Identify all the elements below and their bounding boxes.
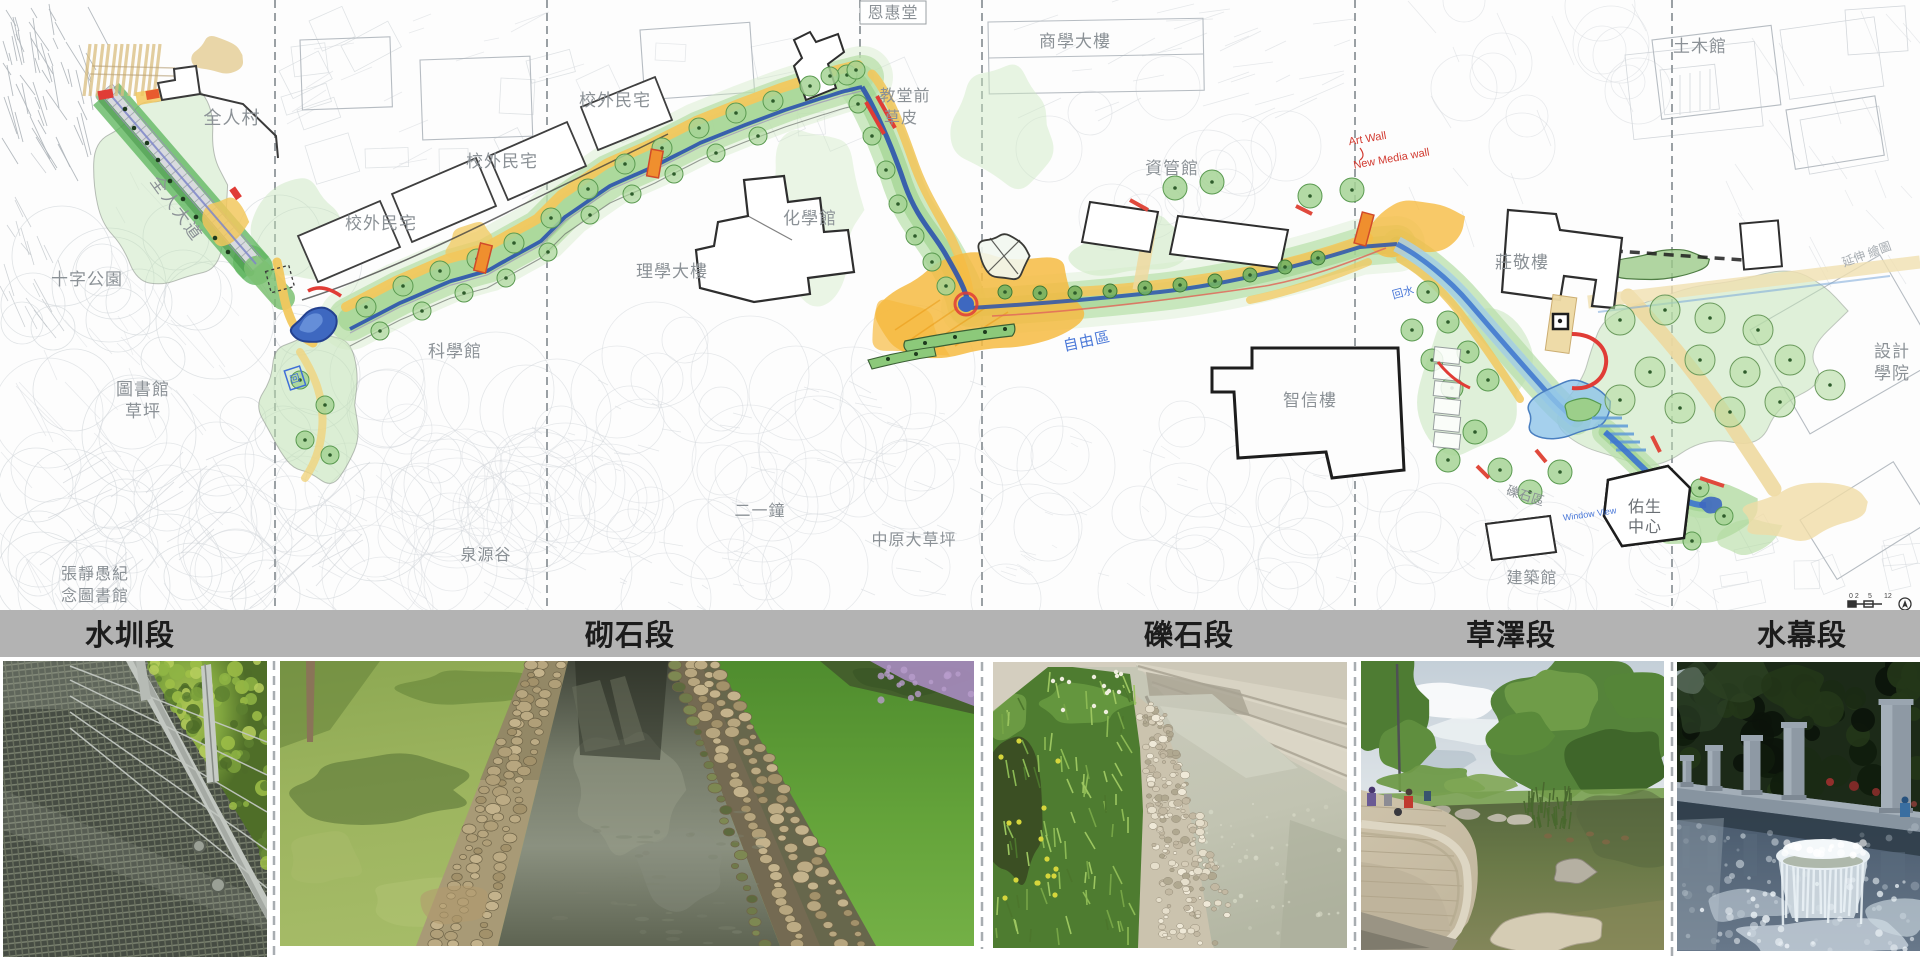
svg-text:念圖書館: 念圖書館 [61,586,129,605]
svg-text:圖書館: 圖書館 [116,380,170,399]
svg-text:全人村: 全人村 [204,108,261,128]
svg-text:草澤段: 草澤段 [1466,618,1556,652]
svg-text:化學館: 化學館 [783,209,837,228]
svg-text:校外民宅: 校外民宅 [466,152,538,171]
svg-text:科學館: 科學館 [428,342,482,361]
svg-text:土木館: 土木館 [1673,37,1727,56]
svg-text:智信樓: 智信樓 [1283,391,1337,410]
svg-text:設計: 設計 [1874,342,1910,361]
svg-text:資管館: 資管館 [1145,159,1199,178]
svg-text:草坪: 草坪 [125,402,161,421]
svg-text:中心: 中心 [1628,518,1662,536]
svg-text:十字公園: 十字公園 [51,270,123,289]
svg-text:商學大樓: 商學大樓 [1039,32,1111,51]
svg-text:12: 12 [1884,593,1892,600]
svg-text:礫石段: 礫石段 [1144,618,1234,652]
svg-text:草皮: 草皮 [884,109,918,127]
svg-text:砌石段: 砌石段 [585,618,675,652]
svg-text:0 2: 0 2 [1849,593,1859,600]
svg-text:校外民宅: 校外民宅 [345,214,417,233]
svg-text:恩惠堂: 恩惠堂 [867,4,918,22]
svg-text:校外民宅: 校外民宅 [579,91,651,110]
svg-text:建築館: 建築館 [1506,569,1557,587]
svg-text:泉源谷: 泉源谷 [460,546,511,564]
svg-text:5: 5 [1868,593,1872,600]
svg-text:教堂前: 教堂前 [879,87,930,105]
svg-text:張靜愚紀: 張靜愚紀 [61,565,129,583]
svg-text:中原大草坪: 中原大草坪 [871,531,956,549]
svg-text:水幕段: 水幕段 [1757,618,1847,652]
svg-text:學院: 學院 [1874,364,1910,383]
svg-text:二一鐘: 二一鐘 [734,502,785,520]
svg-text:理學大樓: 理學大樓 [636,262,708,281]
svg-text:佑生: 佑生 [1628,498,1662,516]
svg-text:莊敬樓: 莊敬樓 [1495,253,1549,272]
svg-text:水圳段: 水圳段 [85,618,175,652]
